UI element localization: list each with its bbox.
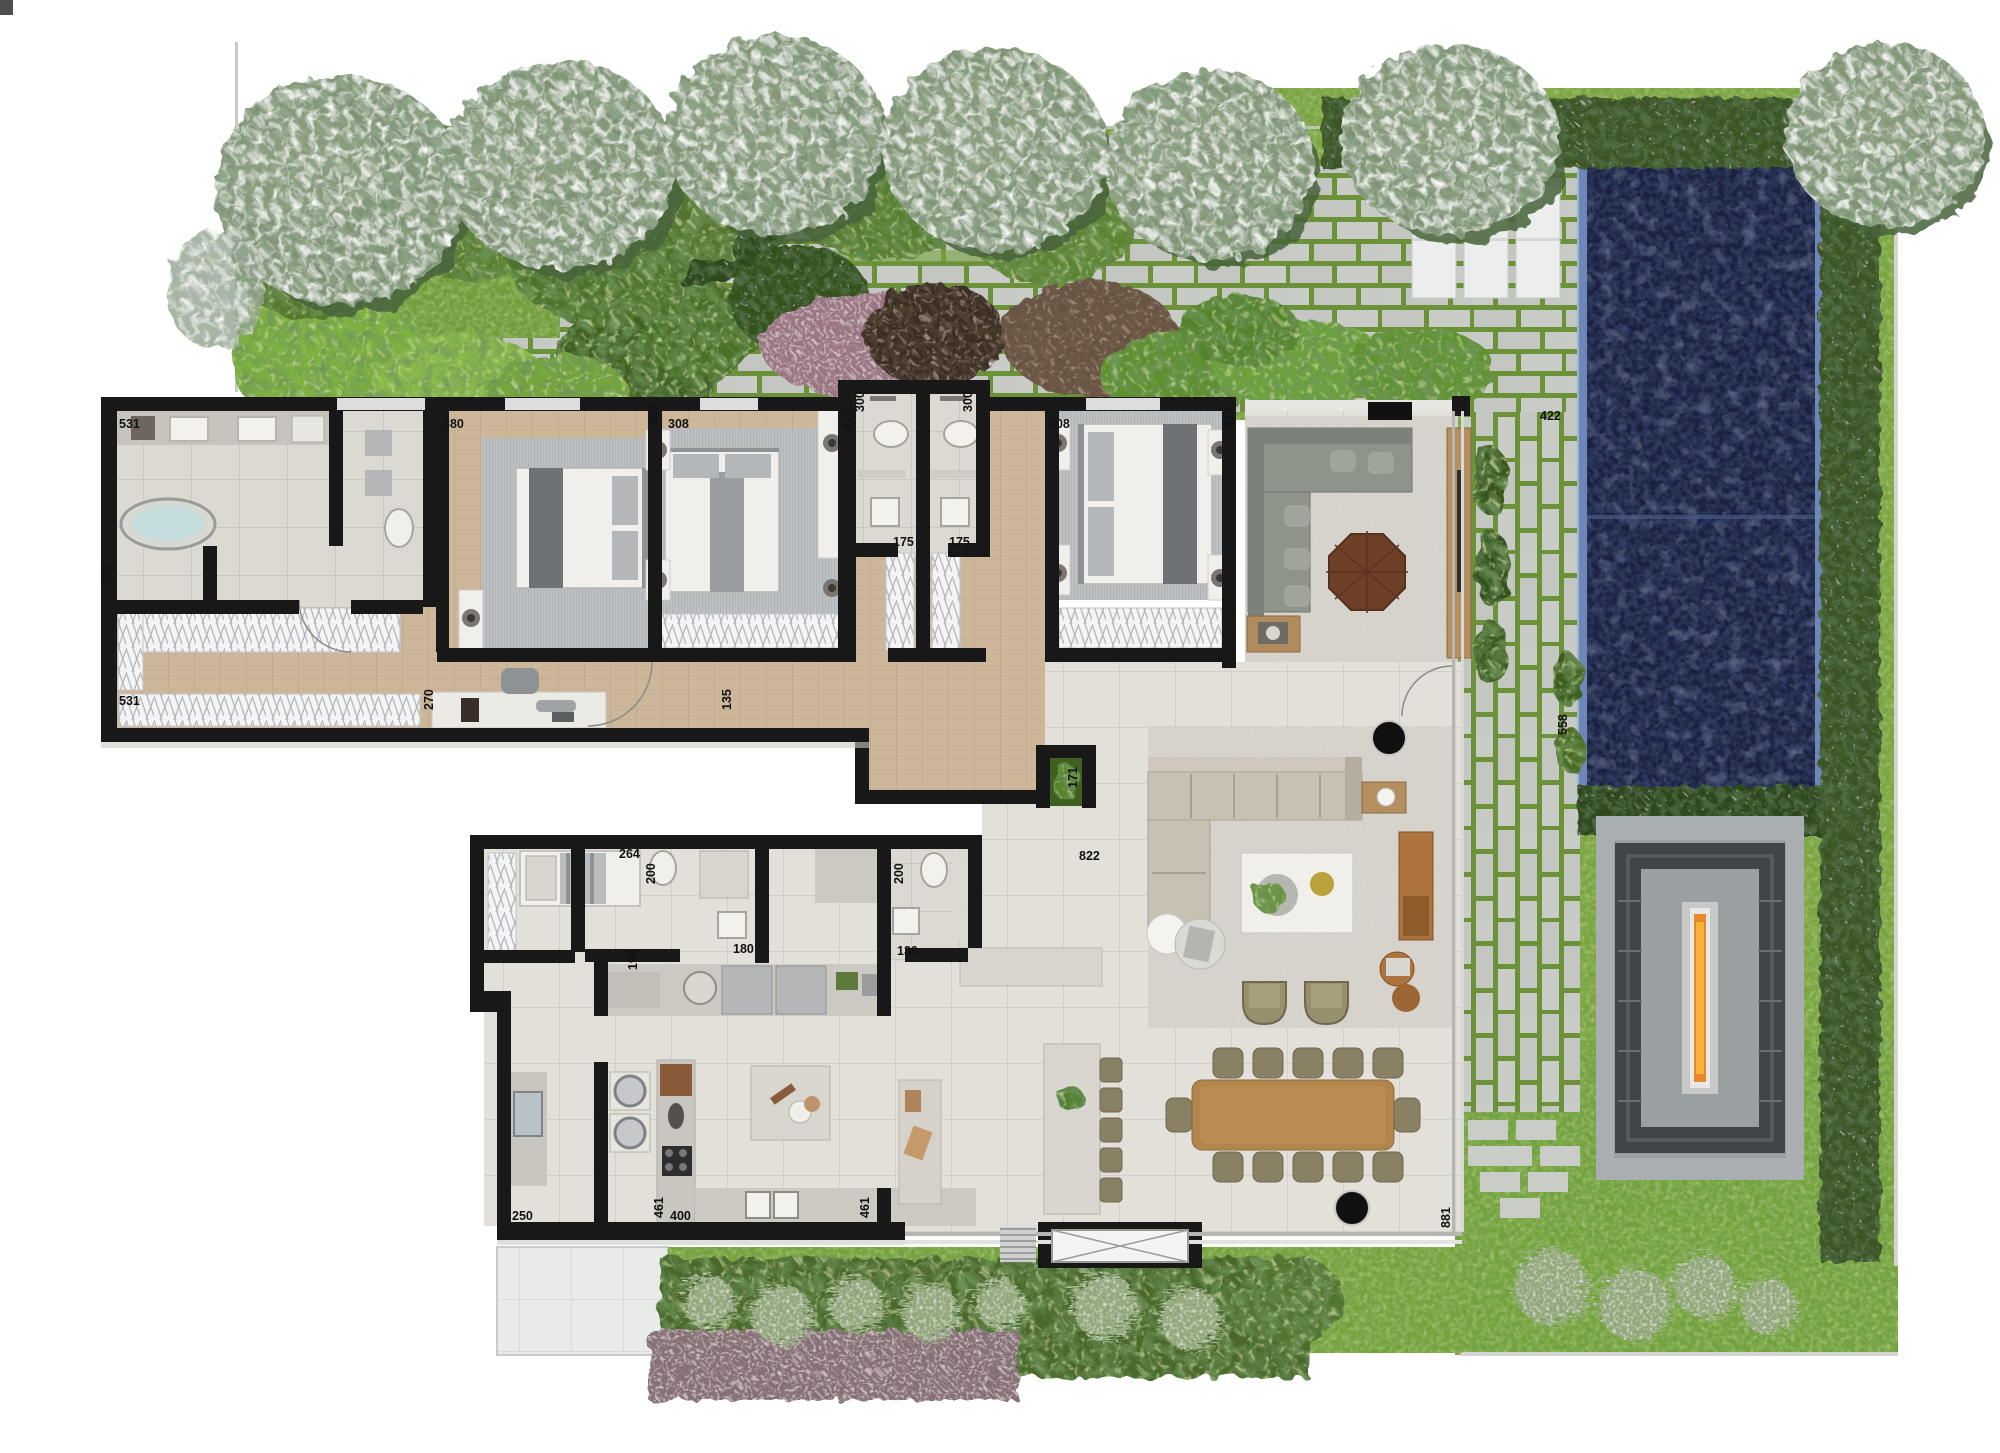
- svg-text:558: 558: [1556, 714, 1570, 735]
- svg-text:400: 400: [670, 1209, 691, 1223]
- svg-text:300: 300: [961, 391, 975, 412]
- svg-text:881: 881: [1439, 1207, 1453, 1228]
- svg-text:175: 175: [949, 535, 970, 549]
- svg-text:308: 308: [668, 417, 689, 431]
- svg-text:200: 200: [892, 863, 906, 884]
- svg-text:380: 380: [443, 417, 464, 431]
- svg-text:175: 175: [893, 535, 914, 549]
- svg-text:171: 171: [1066, 767, 1080, 788]
- svg-text:308: 308: [1049, 417, 1070, 431]
- svg-text:567: 567: [646, 404, 660, 425]
- svg-text:417: 417: [1222, 407, 1236, 428]
- svg-text:135: 135: [720, 689, 734, 710]
- svg-text:461: 461: [652, 1197, 666, 1218]
- svg-text:531: 531: [119, 417, 140, 431]
- svg-text:260: 260: [99, 565, 113, 586]
- svg-text:531: 531: [119, 694, 140, 708]
- svg-text:130: 130: [897, 944, 918, 958]
- svg-text:250: 250: [512, 1209, 533, 1223]
- svg-text:194: 194: [626, 949, 640, 970]
- svg-text:822: 822: [1079, 849, 1100, 863]
- svg-text:300: 300: [853, 391, 867, 412]
- svg-text:180: 180: [733, 942, 754, 956]
- svg-text:461: 461: [858, 1197, 872, 1218]
- svg-text:270: 270: [422, 689, 436, 710]
- svg-text:264: 264: [619, 847, 640, 861]
- svg-text:200: 200: [644, 863, 658, 884]
- svg-text:422: 422: [1540, 409, 1561, 423]
